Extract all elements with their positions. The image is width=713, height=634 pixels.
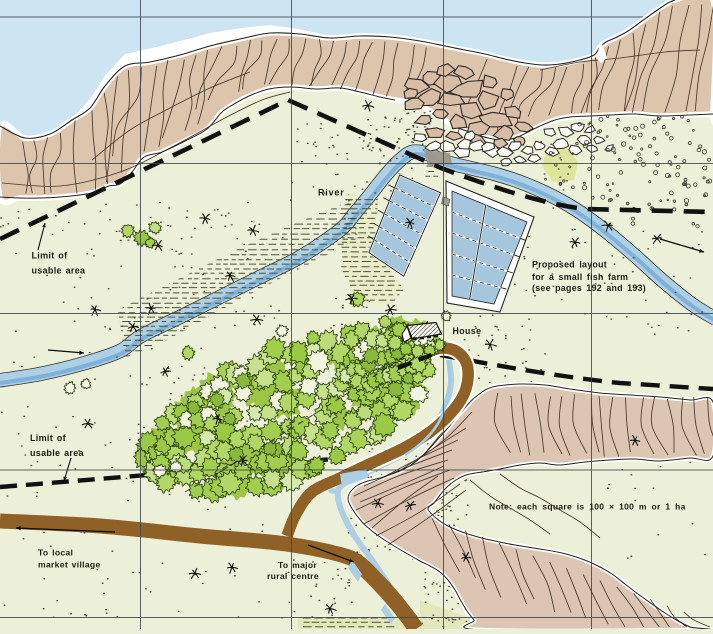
svg-text:Limit of: Limit of: [32, 251, 69, 261]
svg-text:rural centre: rural centre: [267, 571, 319, 581]
svg-text:usable area: usable area: [30, 448, 85, 458]
svg-text:market village: market village: [38, 560, 101, 570]
svg-text:Note: each square is 100 × 100: Note: each square is 100 × 100 m or 1 ha: [489, 502, 686, 512]
svg-text:(see pages 192 and 193): (see pages 192 and 193): [532, 283, 646, 293]
svg-text:for a small fish farm: for a small fish farm: [532, 272, 628, 282]
svg-text:Limit of: Limit of: [30, 433, 67, 443]
svg-text:To major: To major: [278, 560, 317, 570]
svg-text:Proposed layout: Proposed layout: [532, 260, 607, 270]
svg-text:House: House: [453, 326, 482, 336]
svg-text:To local: To local: [38, 548, 73, 558]
svg-text:usable area: usable area: [32, 266, 87, 276]
svg-text:River: River: [318, 188, 345, 198]
